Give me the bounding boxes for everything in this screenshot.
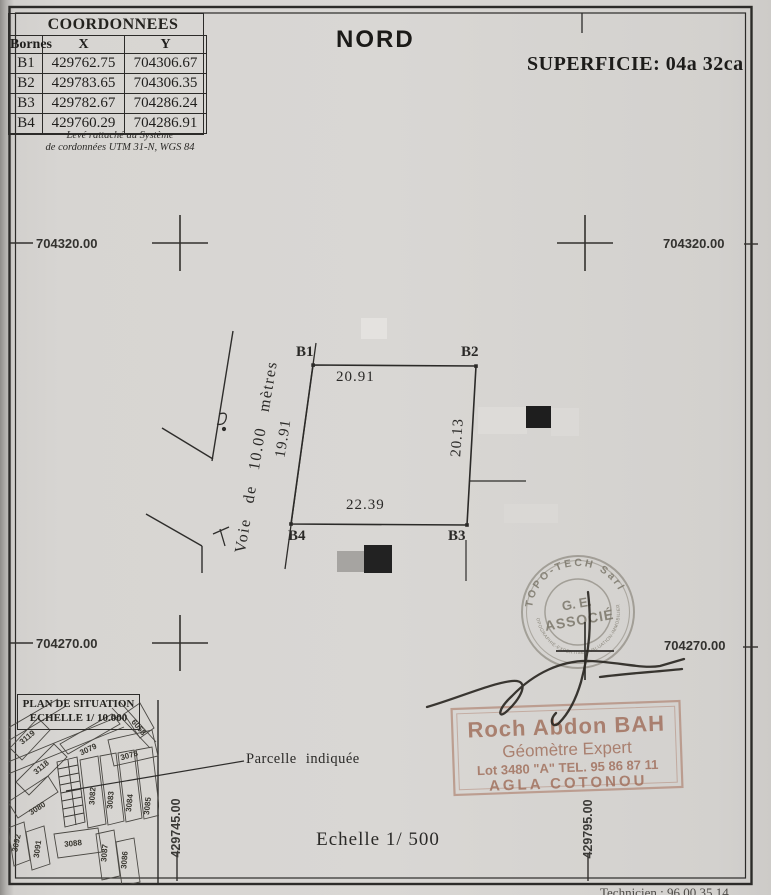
coordinates-table: COORDONNEES Bornes X Y B1 429762.75 7043…: [8, 13, 204, 135]
rect-stamp: Roch Abdon BAH Géomètre Expert Lot 3480 …: [452, 701, 683, 796]
bottom-partial-text: Technicien : 96 00 35 14: [600, 885, 729, 895]
lot-number: 3080: [27, 799, 47, 817]
lot-number: 3119: [18, 728, 38, 746]
coord-cell: B3: [10, 94, 43, 114]
x-east-label: 429795.00: [581, 799, 595, 858]
col-header-x: X: [43, 36, 125, 54]
parcel-pointer-line: [66, 761, 244, 791]
parcel-pointer-label: Parcelle indiquée: [246, 751, 360, 768]
col-header-y: Y: [125, 36, 207, 54]
lot-number: 3082: [87, 786, 97, 805]
grid-y-south-west: 704270.00: [36, 636, 97, 651]
scale-label: Echelle 1/ 500: [298, 829, 458, 851]
situation-plan-title: PLAN DE SITUATION ECHELLE 1/ 10.000: [17, 694, 140, 730]
x-west-label: 429745.00: [169, 798, 183, 857]
col-header-bornes: Bornes: [10, 36, 43, 54]
corner-label-b3: B3: [448, 528, 466, 545]
lot-number: 3087: [99, 843, 110, 862]
coord-cell: 429783.65: [43, 74, 125, 94]
grid-y-north-east: 704320.00: [663, 236, 724, 251]
situation-title-line1: PLAN DE SITUATION: [18, 697, 139, 711]
coord-cell: B1: [10, 54, 43, 74]
lot-number: 3078: [119, 749, 139, 763]
lot-number: 3079: [78, 741, 98, 757]
area-label: SUPERFICIE: 04a 32ca: [527, 53, 744, 76]
coord-cell: 704306.35: [125, 74, 207, 94]
dimension-bottom: 22.39: [346, 497, 385, 514]
corner-label-b4: B4: [288, 528, 306, 545]
coordinates-title: COORDONNEES: [9, 14, 203, 35]
corner-label-b1: B1: [296, 344, 314, 361]
table-row: B1 429762.75 704306.67: [10, 54, 207, 74]
situation-title-line2: ECHELLE 1/ 10.000: [18, 711, 139, 725]
datum-note-line2: de cordonnées UTM 31-N, WGS 84: [28, 142, 212, 154]
coord-cell: 704306.67: [125, 54, 207, 74]
table-row: B2 429783.65 704306.35: [10, 74, 207, 94]
lot-number: 3088: [64, 838, 83, 849]
coord-cell: B2: [10, 74, 43, 94]
lot-number: 3084: [124, 793, 135, 812]
lot-number: 3091: [32, 839, 43, 858]
coord-cell: 429762.75: [43, 54, 125, 74]
lot-number: 3086: [119, 850, 130, 869]
survey-mark-icon: [213, 527, 229, 546]
grid-crosshairs: [152, 215, 613, 671]
table-row: B3 429782.67 704286.24: [10, 94, 207, 114]
dimension-right: 20.13: [448, 415, 468, 460]
grid-y-north-west: 704320.00: [36, 236, 97, 251]
grid-y-south-east: 704270.00: [664, 638, 725, 653]
lot-number: 3085: [142, 796, 153, 815]
coord-cell: 704286.24: [125, 94, 207, 114]
coord-cell: 429782.67: [43, 94, 125, 114]
datum-note-line1: Levé rattaché au Système: [28, 130, 212, 142]
survey-plan-page: 3119 3118 3079 6058 3078 3080 3082 3083 …: [0, 0, 771, 895]
datum-note: Levé rattaché au Système de cordonnées U…: [28, 130, 212, 153]
lot-number: 3118: [32, 758, 52, 776]
north-label: NORD: [336, 26, 415, 54]
corner-label-b2: B2: [461, 344, 479, 361]
lot-number: 3083: [105, 790, 116, 809]
dimension-top: 20.91: [336, 369, 375, 386]
lot-number: 3092: [10, 833, 23, 853]
